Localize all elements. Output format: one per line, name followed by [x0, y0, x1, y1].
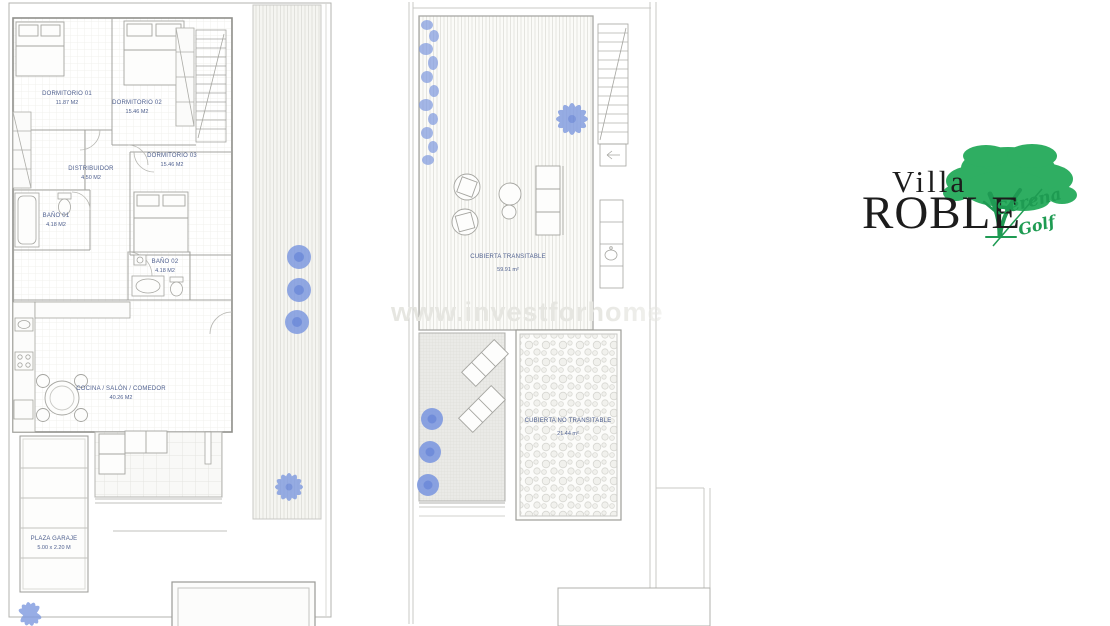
- non-walkable-roof: [516, 330, 621, 520]
- porch-steps: [95, 499, 227, 531]
- round-chair-icon: [454, 174, 480, 200]
- bathtub-icon: [15, 193, 39, 247]
- lower-structure: [558, 588, 710, 626]
- wardrobe-icon: [13, 112, 31, 188]
- palm-icon: [17, 601, 42, 626]
- bed-icon: [16, 22, 64, 76]
- bush-icon: [285, 245, 311, 334]
- sink-icon: [134, 255, 146, 265]
- sofa-icon: [536, 166, 563, 235]
- toilet-icon: [170, 277, 183, 296]
- round-chair-icon: [452, 209, 478, 235]
- pool: [172, 582, 315, 626]
- bathtub-icon: [132, 276, 164, 296]
- bed-icon: [134, 192, 188, 252]
- house-outline: [13, 18, 232, 432]
- garage-area: [20, 436, 88, 592]
- outdoor-kitchen: [600, 200, 623, 288]
- ground-floor-plan: [0, 0, 340, 626]
- wardrobe-icon: [176, 28, 194, 126]
- stairs-icon: [598, 24, 628, 144]
- tv-unit-icon: [205, 432, 211, 464]
- floorplan-canvas: DORMITORIO 01 11.87 M2 DORMITORIO 02 15.…: [0, 0, 1110, 626]
- garden-strip: [253, 5, 321, 519]
- bed-icon: [124, 21, 184, 85]
- roof-terrace: [419, 16, 593, 330]
- toilet-icon: [58, 193, 71, 215]
- stair-arrow-icon: [600, 144, 626, 166]
- watermark-text: www.investforhome: [391, 297, 761, 335]
- villa-roble-logo: Villa ROBLE Serena Golf: [860, 140, 1095, 255]
